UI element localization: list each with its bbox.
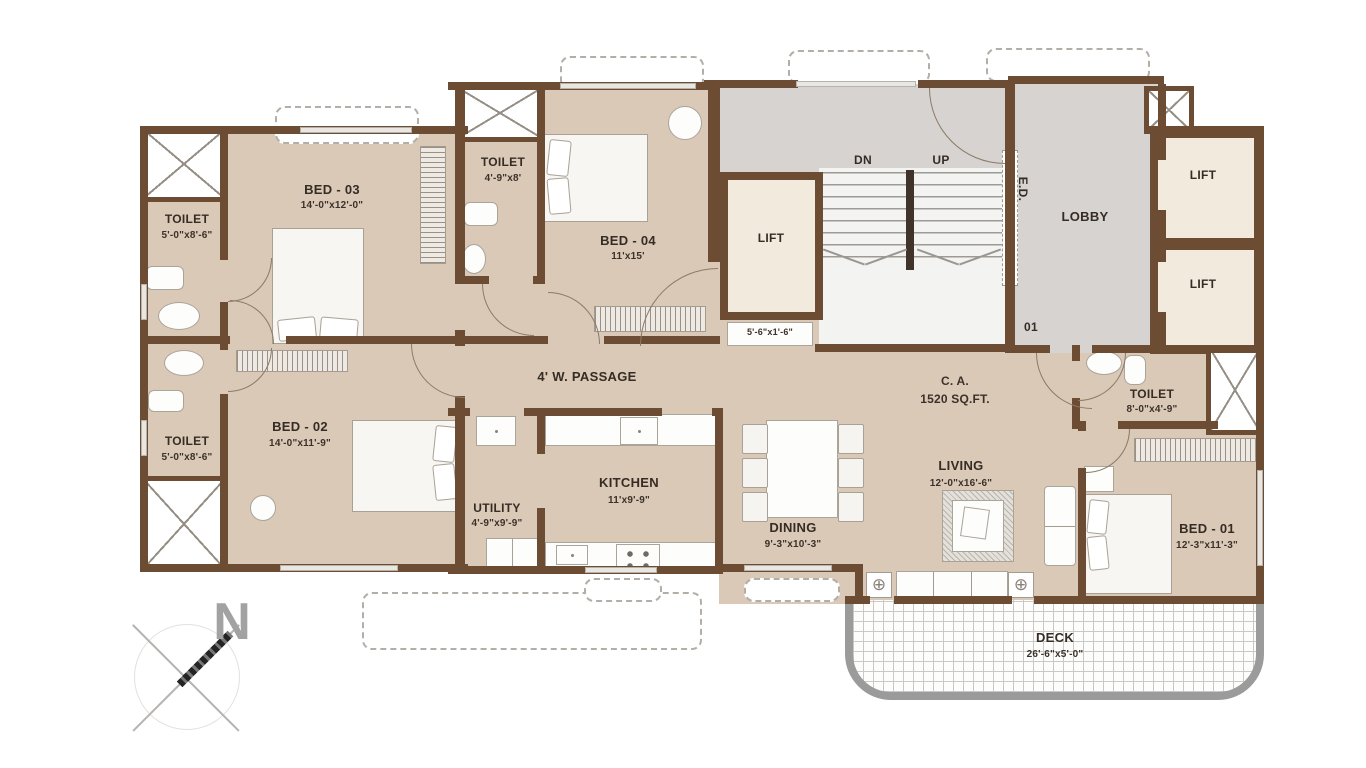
wall: [894, 596, 1012, 604]
label-unit-number: 01: [1024, 320, 1038, 334]
room-label-bed4: BED - 04: [600, 233, 656, 248]
room-label-lift-a: LIFT: [758, 231, 785, 245]
wall: [537, 408, 545, 454]
stair-label-dn: DN: [854, 153, 872, 167]
toilet-wc: [1124, 355, 1146, 385]
window: [560, 83, 696, 89]
wall: [1158, 312, 1166, 353]
bathtub: [146, 266, 184, 290]
ottoman-stool: [668, 106, 702, 140]
pillow: [432, 425, 458, 463]
lift-cabin-upper-right: [1150, 130, 1262, 246]
window: [141, 420, 147, 456]
room-label-toilet-bl: TOILET: [165, 434, 209, 448]
room-label-toilet-tl: TOILET: [165, 212, 209, 226]
wall: [715, 408, 723, 572]
washing-machine: [486, 538, 538, 568]
pillow: [1086, 535, 1109, 571]
duct-x-box: [140, 476, 228, 572]
wall: [708, 82, 720, 262]
balcony-ledge: [584, 578, 662, 602]
utility-counter: [476, 416, 516, 446]
bathtub: [464, 202, 498, 226]
wall: [455, 396, 465, 572]
stair-mid-wall: [906, 170, 914, 270]
dining-chair: [742, 424, 768, 454]
wall: [140, 126, 148, 572]
lift-shaft-dims: 5'-6"x1'-6": [747, 327, 793, 337]
dining-chair: [838, 492, 864, 522]
wall: [220, 302, 228, 350]
room-dims-toilet-bl: 5'-0"x8'-6": [162, 452, 213, 463]
wall: [1158, 210, 1166, 262]
window: [300, 127, 412, 133]
pillow: [1086, 499, 1109, 535]
room-dims-deck: 26'-6"x5'-0": [1027, 649, 1084, 660]
window: [585, 567, 657, 573]
cooktop-stove: [616, 544, 660, 568]
label-carpet-area-2: 1520 SQ.FT.: [920, 392, 990, 406]
duct-x-box: [140, 126, 228, 202]
wall: [455, 84, 465, 282]
room-label-toilet-r: TOILET: [1130, 387, 1174, 401]
wall: [286, 336, 468, 344]
compass-north-letter: N: [213, 592, 251, 652]
room-label-toilet-mid: TOILET: [481, 155, 525, 169]
room-dims-bed3: 14'-0"x12'-0": [301, 200, 363, 211]
stair-label-up: UP: [932, 153, 949, 167]
planter-box: ⊕: [1008, 572, 1034, 598]
wall: [537, 508, 545, 574]
wall: [815, 344, 1012, 352]
room-dims-bed4: 11'x15': [611, 251, 644, 262]
wall: [1008, 76, 1164, 84]
window: [280, 565, 398, 571]
room-dims-dining: 9'-3"x10'-3": [765, 539, 822, 550]
balcony-ledge: [275, 106, 419, 144]
wall: [1005, 80, 1015, 353]
room-label-utility: UTILITY: [473, 501, 520, 515]
wall: [140, 336, 230, 344]
wall: [1078, 596, 1264, 604]
floor-plan-canvas: ⊕ ⊕: [0, 0, 1366, 768]
room-dims-kitchen: 11'x9'-9": [608, 495, 650, 506]
armchair: [1044, 486, 1076, 566]
room-label-bed3: BED - 03: [304, 182, 360, 197]
wall: [537, 84, 545, 284]
wall: [1158, 84, 1166, 160]
room-label-lift-b: LIFT: [1190, 168, 1217, 182]
sink-drain: [571, 554, 574, 557]
room-label-lift-c: LIFT: [1190, 277, 1217, 291]
pillow: [546, 139, 572, 177]
sink-drain: [495, 430, 498, 433]
wall: [452, 336, 548, 344]
kitchen-sink: [556, 545, 588, 565]
wall: [1092, 345, 1264, 353]
room-label-bed2: BED - 02: [272, 419, 328, 434]
wardrobe: [420, 146, 446, 264]
dining-chair: [742, 458, 768, 488]
room-label-deck: DECK: [1036, 630, 1074, 645]
wall: [1118, 421, 1218, 429]
window: [796, 81, 916, 87]
dining-chair: [742, 492, 768, 522]
washbasin: [164, 350, 204, 376]
room-dims-bed1: 12'-3"x11'-3": [1176, 540, 1238, 551]
duct-x-box: [455, 84, 545, 142]
wall: [220, 126, 228, 260]
label-passage: 4' W. PASSAGE: [537, 369, 636, 384]
room-label-dining: DINING: [769, 520, 816, 535]
wall: [918, 80, 1014, 88]
planter-box: ⊕: [866, 572, 892, 598]
planter-icon: ⊕: [1014, 575, 1028, 594]
wall: [220, 394, 228, 572]
room-label-living: LIVING: [938, 458, 983, 473]
room-label-lobby: LOBBY: [1062, 209, 1109, 224]
pillow: [546, 177, 571, 215]
room-dims-toilet-tl: 5'-0"x8'-6": [162, 230, 213, 241]
lift-cabin-lower-right: [1150, 242, 1262, 354]
planter-icon: ⊕: [872, 575, 886, 594]
label-electrical-duct: E.D.: [1016, 177, 1030, 202]
wardrobe: [1134, 438, 1256, 462]
room-label-kitchen: KITCHEN: [599, 475, 659, 490]
balcony-ledge: [744, 578, 840, 602]
room-label-bed1: BED - 01: [1179, 521, 1235, 536]
bathtub: [148, 390, 184, 412]
window: [141, 284, 147, 320]
room-dims-bed2: 14'-0"x11'-9": [269, 438, 331, 449]
sofa: [896, 571, 1008, 597]
toilet-wc: [462, 244, 486, 274]
sink-drain: [638, 430, 641, 433]
room-dims-utility: 4'-9"x9'-9": [472, 518, 523, 529]
wall: [855, 564, 863, 604]
room-dims-toilet-mid: 4'-9"x8': [485, 173, 522, 184]
balcony-ledge: [788, 50, 930, 84]
window: [1257, 470, 1263, 566]
label-carpet-area-1: C. A.: [941, 374, 969, 388]
kitchen-sink: [620, 417, 658, 445]
window: [744, 565, 832, 571]
side-table-round: [250, 495, 276, 521]
wall: [1012, 345, 1050, 353]
room-dims-living: 12'-0"x16'-6": [930, 478, 992, 489]
dining-chair: [838, 458, 864, 488]
dining-chair: [838, 424, 864, 454]
washbasin: [158, 302, 200, 330]
lift-cabin-stair-side: [720, 172, 823, 320]
pillow: [432, 463, 458, 501]
wall: [1078, 421, 1086, 431]
wall: [1078, 468, 1086, 604]
room-dims-toilet-r: 8'-0"x4'-9": [1127, 404, 1178, 415]
dining-table: [766, 420, 838, 518]
coffee-table-glass: [960, 506, 990, 539]
